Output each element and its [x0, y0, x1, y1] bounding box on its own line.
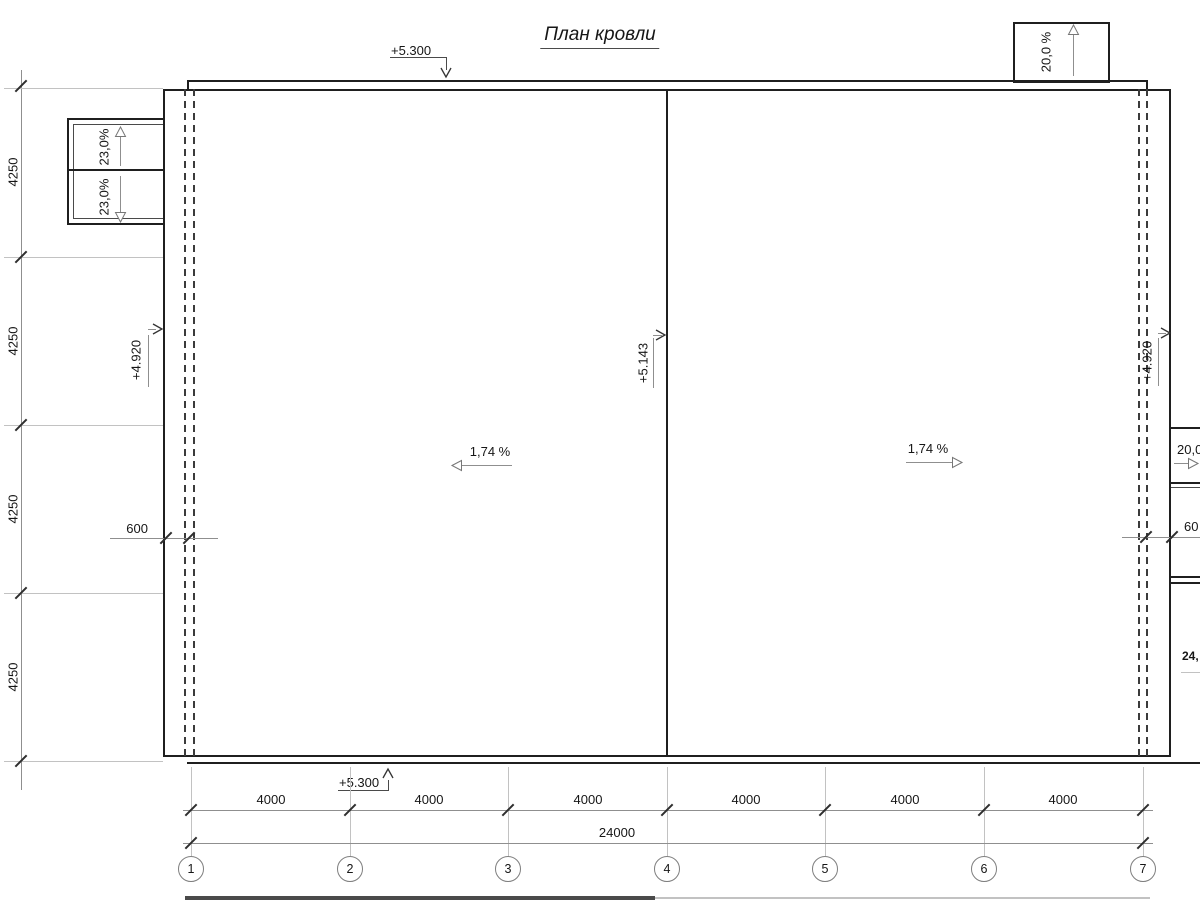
bay-dim-label: 4000 — [257, 792, 286, 807]
ridge-line — [666, 89, 668, 757]
hidden-line-left-inner — [193, 89, 195, 757]
roof-bottom-accent-line — [187, 762, 1200, 764]
elevation-bottom-leader-rise — [388, 780, 389, 791]
grid-bubble-7: 7 — [1130, 856, 1156, 882]
right-ramp-slope-label: 24, — [1182, 649, 1199, 663]
elevation-left-eave-label: +4.920 — [129, 340, 144, 380]
bay-dim-label: 4000 — [574, 792, 603, 807]
right-overhang-dim-line — [1122, 537, 1200, 538]
right-structure-top-line — [1171, 427, 1200, 429]
hidden-line-left-outer — [184, 89, 186, 757]
slope-arrow-up-icon — [115, 127, 126, 137]
elevation-ridge-label: +5.143 — [636, 343, 651, 383]
elevation-right-eave-leader — [1158, 338, 1159, 386]
elevation-bottom-leader — [338, 790, 389, 791]
bottom-total-dim-line — [183, 843, 1153, 844]
slope-arrow-down-icon — [115, 212, 126, 222]
elevation-right-eave-label: +4.920 — [1140, 341, 1155, 381]
slope-arrow-right-icon — [1188, 458, 1198, 469]
grid-bubble-2: 2 — [337, 856, 363, 882]
elevation-left-eave-leader — [148, 335, 149, 387]
roof-top-accent-line — [187, 80, 1148, 82]
elevation-ridge-leader — [653, 338, 654, 388]
slope-arrow-right-icon — [952, 457, 962, 468]
elevation-arrow-up-icon — [382, 768, 394, 780]
slope-arrow-left-icon — [452, 460, 462, 471]
left-dim-label: 4250 — [6, 495, 21, 524]
elevation-top-label: +5.300 — [391, 43, 431, 58]
left-canopy-inner-top-line — [73, 124, 163, 125]
grid-bubble-5: 5 — [812, 856, 838, 882]
left-dim-label: 4250 — [6, 663, 21, 692]
elevation-arrow-right-icon — [151, 323, 163, 335]
roof-top-accent-step-left — [187, 80, 189, 89]
right-structure-line — [1171, 576, 1200, 578]
slope-arrow-up-icon — [1068, 25, 1079, 35]
left-canopy-divider-line — [69, 169, 163, 171]
left-extension-line — [4, 761, 163, 762]
elevation-arrow-right-icon — [654, 329, 666, 341]
top-canopy-outline — [1013, 22, 1110, 83]
top-canopy-arrow-shaft — [1073, 34, 1074, 76]
bay-dim-label: 4000 — [415, 792, 444, 807]
elevation-arrow-right-icon — [1159, 327, 1171, 339]
left-overhang-dim-label: 600 — [118, 521, 148, 536]
grid-bubble-4: 4 — [654, 856, 680, 882]
total-dim-label: 24000 — [599, 825, 635, 840]
right-slope-label: 1,74 % — [908, 441, 948, 456]
grid-bubble-6: 6 — [971, 856, 997, 882]
elevation-arrow-down-icon — [440, 66, 452, 78]
bay-dim-label: 4000 — [732, 792, 761, 807]
left-canopy-upper-arrow-shaft — [120, 136, 121, 166]
bottom-cutoff-element-dark — [185, 896, 655, 900]
right-slope-cutoff-label: 20,0 — [1177, 442, 1200, 457]
right-overhang-dim-label: 60 — [1184, 519, 1198, 534]
right-ramp-underline — [1181, 672, 1200, 673]
hidden-line-right-outer — [1146, 89, 1148, 757]
bay-dim-label: 4000 — [1049, 792, 1078, 807]
top-canopy-slope-label: 20,0 % — [1039, 32, 1054, 72]
right-structure-line — [1171, 487, 1200, 488]
elevation-top-leader — [390, 57, 447, 58]
roof-top-accent-step-right — [1146, 80, 1148, 89]
hidden-line-right-inner — [1138, 89, 1140, 757]
roof-plan-drawing: План кровли 23,0% 23,0% 20,0 % 1,74 % 1,… — [0, 0, 1200, 900]
left-slope-arrow-shaft — [458, 465, 512, 466]
left-dim-label: 4250 — [6, 158, 21, 187]
left-slope-label: 1,74 % — [470, 444, 510, 459]
bottom-cutoff-element-light — [655, 897, 1150, 899]
grid-bubble-3: 3 — [495, 856, 521, 882]
right-structure-line — [1171, 482, 1200, 484]
left-dim-line — [21, 70, 22, 790]
left-extension-line — [4, 88, 163, 89]
left-canopy-inner-left-line — [73, 124, 74, 219]
bay-dim-label: 4000 — [891, 792, 920, 807]
left-canopy-upper-slope-label: 23,0% — [97, 129, 112, 166]
right-structure-line — [1171, 582, 1200, 584]
elevation-bottom-label: +5.300 — [339, 775, 379, 790]
left-canopy-lower-arrow-shaft — [120, 176, 121, 212]
left-extension-line — [4, 425, 163, 426]
left-extension-line — [4, 593, 163, 594]
grid-bubble-1: 1 — [178, 856, 204, 882]
page-title: План кровли — [540, 24, 659, 49]
left-dim-label: 4250 — [6, 327, 21, 356]
right-slope-arrow-shaft — [906, 462, 956, 463]
left-extension-line — [4, 257, 163, 258]
left-canopy-lower-slope-label: 23,0% — [97, 179, 112, 216]
